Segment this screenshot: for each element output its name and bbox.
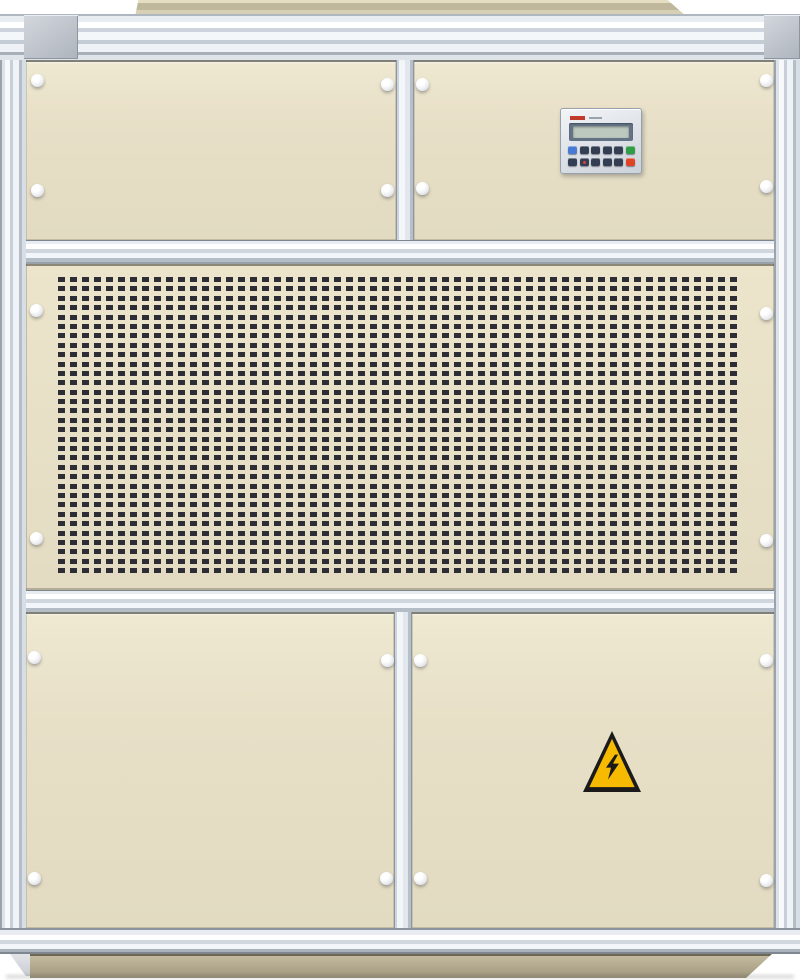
keypad-button-dark[interactable] [614, 146, 623, 154]
frame-corner-cap-right [764, 15, 800, 59]
perforation-row [58, 540, 742, 545]
controller-keypad [560, 108, 642, 174]
perforation-row [58, 343, 742, 348]
panel-fastener-knob [31, 184, 44, 197]
panel-fastener-knob [380, 872, 393, 885]
perforation-row [58, 371, 742, 376]
keypad-button-red[interactable] [626, 158, 635, 166]
perforation-row [58, 418, 742, 423]
panel-fastener-knob [381, 654, 394, 667]
keypad-button-row [568, 146, 635, 154]
perforation-row [58, 399, 742, 404]
panel-fastener-knob [760, 180, 773, 193]
perforation-grid [58, 277, 742, 577]
keypad-button-blue[interactable] [568, 146, 577, 154]
keypad-button-dark[interactable] [603, 146, 612, 154]
keypad-button-row [568, 158, 635, 166]
perforation-row [58, 568, 742, 573]
perforation-row [58, 362, 742, 367]
keypad-button-dark[interactable] [591, 146, 600, 154]
perforation-row [58, 502, 742, 507]
panel-fastener-knob [381, 184, 394, 197]
keypad-buttons [568, 146, 635, 170]
keypad-button-dark[interactable] [568, 158, 577, 166]
panel-fastener-knob [760, 874, 773, 887]
keypad-button-dark-dot[interactable] [580, 158, 589, 166]
keypad-brand-mark [570, 116, 585, 120]
perforation-row [58, 531, 742, 536]
keypad-button-dark[interactable] [580, 146, 589, 154]
floor-shadow [6, 975, 794, 980]
panel-fastener-knob [414, 872, 427, 885]
panel-fastener-knob [416, 182, 429, 195]
panel-fastener-knob [760, 74, 773, 87]
panel-fastener-knob [760, 654, 773, 667]
perforation-row [58, 446, 742, 451]
keypad-button-dark[interactable] [603, 158, 612, 166]
panel-fastener-knob [30, 304, 43, 317]
frame-bottom-rail [0, 928, 800, 954]
electrical-hazard-icon [583, 731, 641, 792]
lightning-bolt-icon [602, 753, 622, 780]
perforation-row [58, 493, 742, 498]
panel-fastener-knob [31, 74, 44, 87]
panel-fastener-knob [414, 654, 427, 667]
button-indicator-dot [583, 161, 586, 164]
upper-left-panel [26, 60, 396, 240]
photo-canvas [0, 0, 800, 980]
perforation-row [58, 305, 742, 310]
lower-left-door [26, 612, 394, 928]
perforation-row [58, 390, 742, 395]
panel-fastener-knob [760, 307, 773, 320]
frame-top-rail [0, 14, 800, 60]
panel-fastener-knob [28, 872, 41, 885]
keypad-button-green[interactable] [626, 146, 635, 154]
perforation-row [58, 521, 742, 526]
perforation-row [58, 286, 742, 291]
perforation-row [58, 296, 742, 301]
perforation-row [58, 333, 742, 338]
keypad-model-mark [589, 117, 602, 119]
lcd-screen [573, 126, 629, 138]
perforation-row [58, 380, 742, 385]
upper-vertical-divider [396, 60, 414, 240]
frame-lower-rail [26, 590, 774, 612]
perforation-row [58, 408, 742, 413]
panel-fastener-knob [416, 78, 429, 91]
perforation-row [58, 549, 742, 554]
panel-fastener-knob [760, 534, 773, 547]
perforation-row [58, 474, 742, 479]
frame-mid-rail [26, 240, 774, 264]
lower-vertical-divider [394, 612, 412, 928]
frame-left-rail [0, 60, 26, 928]
lcd-display [569, 123, 633, 141]
perforation-row [58, 455, 742, 460]
panel-fastener-knob [30, 532, 43, 545]
perforation-row [58, 465, 742, 470]
keypad-button-dark[interactable] [591, 158, 600, 166]
perforation-row [58, 324, 742, 329]
keypad-button-dark[interactable] [614, 158, 623, 166]
frame-right-rail [774, 60, 800, 928]
panel-fastener-knob [28, 651, 41, 664]
perforation-row [58, 315, 742, 320]
grille-panel [26, 264, 774, 590]
perforation-row [58, 352, 742, 357]
panel-fastener-knob [381, 78, 394, 91]
perforation-row [58, 277, 742, 282]
perforation-row [58, 427, 742, 432]
perforation-row [58, 437, 742, 442]
frame-corner-cap-left [24, 15, 78, 59]
perforation-row [58, 484, 742, 489]
perforation-row [58, 559, 742, 564]
perforation-row [58, 512, 742, 517]
